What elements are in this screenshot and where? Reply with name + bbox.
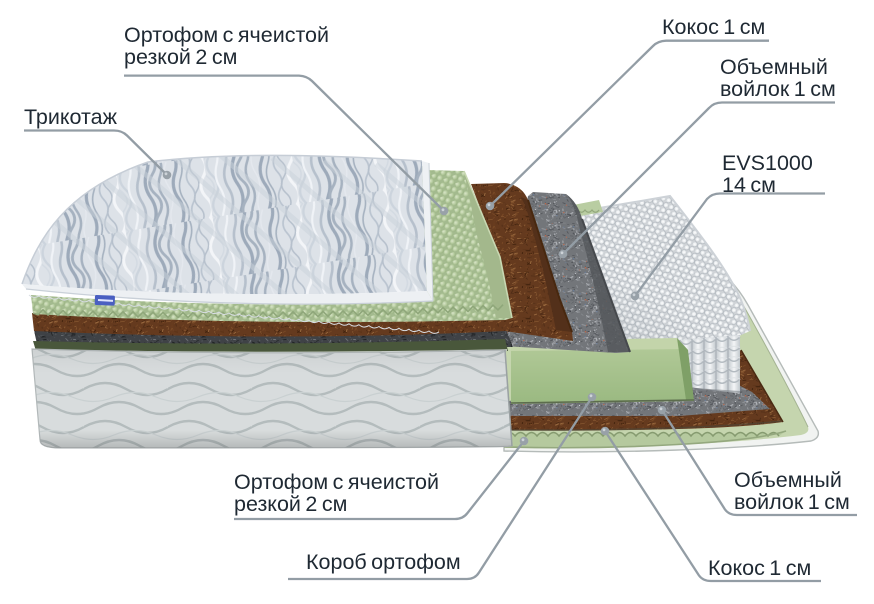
svg-text:Объемныйвойлок 1 см: Объемныйвойлок 1 см [720,55,836,101]
svg-text:Трикотаж: Трикотаж [24,105,118,129]
svg-text:Кокос 1 см: Кокос 1 см [708,556,811,580]
svg-text:Объемныйвойлок 1 см: Объемныйвойлок 1 см [734,468,850,514]
svg-text:Кокос 1 см: Кокос 1 см [662,15,765,39]
svg-text:Ортофом с ячеистойрезкой 2 см: Ортофом с ячеистойрезкой 2 см [124,23,329,69]
svg-text:Ортофом с ячеистойрезкой 2 см: Ортофом с ячеистойрезкой 2 см [234,470,439,516]
svg-text:EVS100014 см: EVS100014 см [722,151,813,197]
svg-text:Короб ортофом: Короб ортофом [306,550,461,574]
